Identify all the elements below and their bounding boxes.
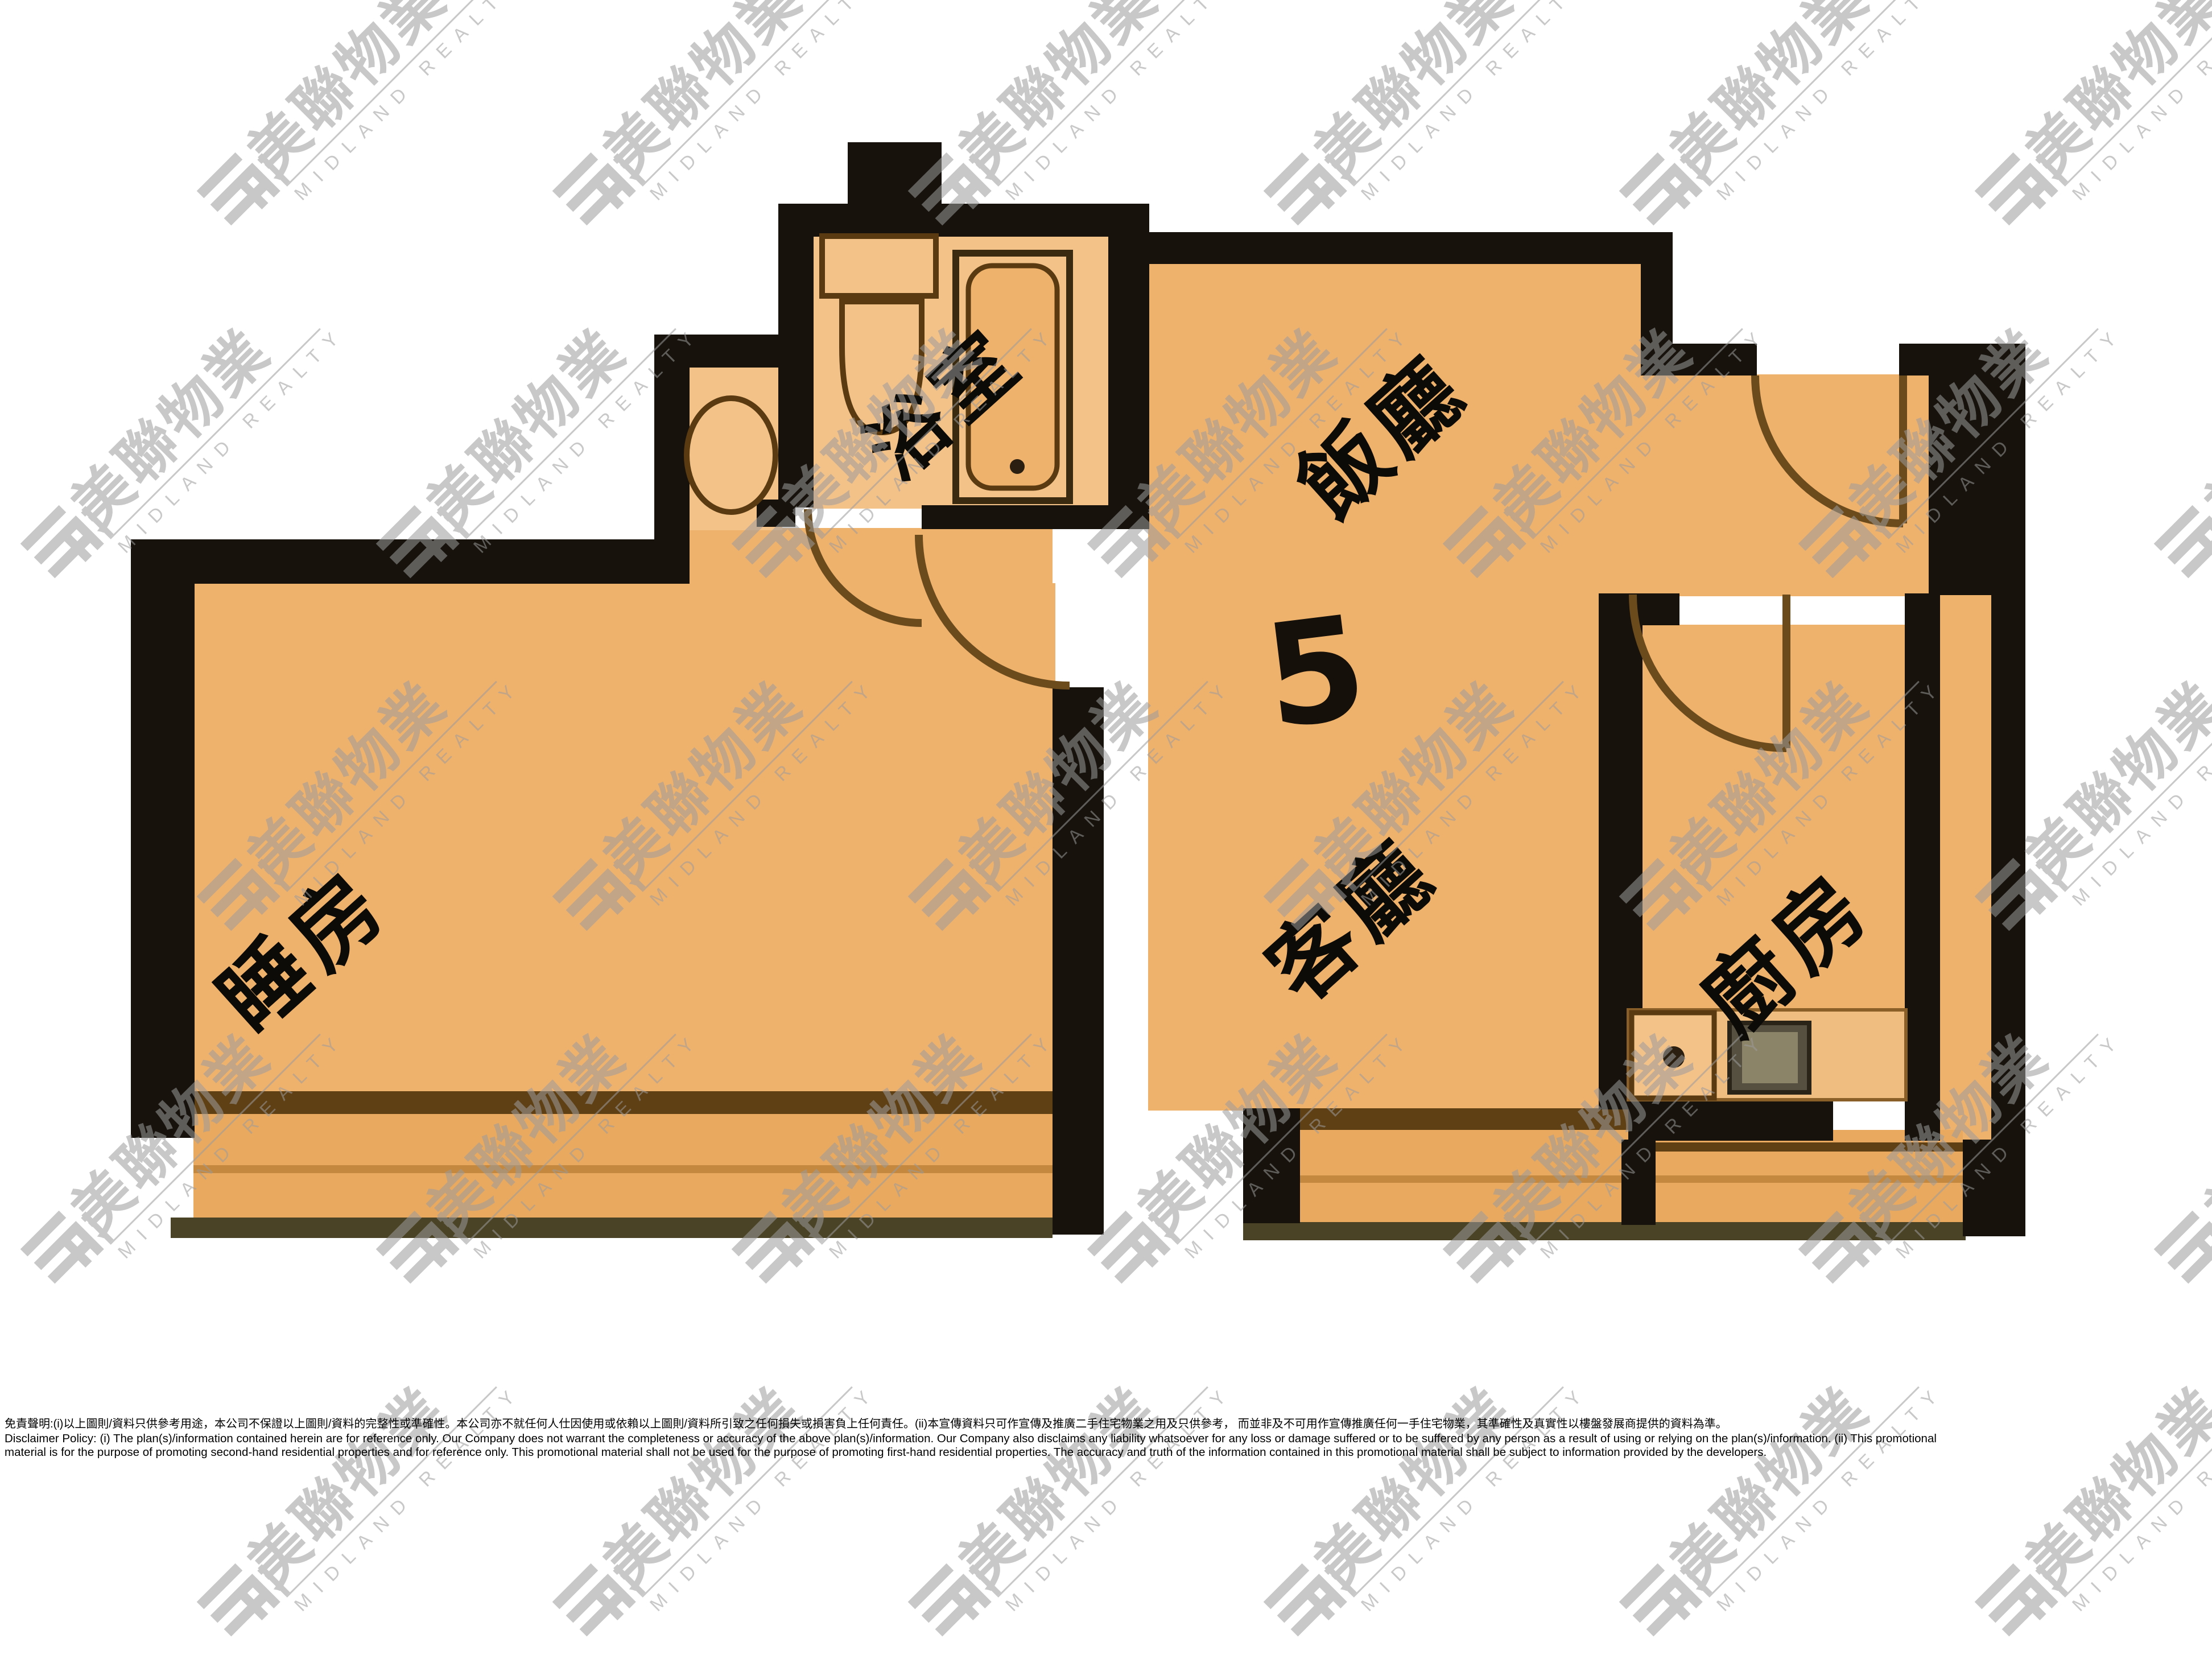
bathroom-bottom-wall — [922, 505, 1149, 529]
midland-logo-icon — [1264, 1563, 1341, 1641]
kitchen-bottom-wall — [1628, 1098, 1833, 1141]
bedroom-top-wall — [131, 539, 657, 584]
kitchen-window-line — [1656, 1142, 1963, 1152]
bedroom-living-partition — [1053, 687, 1104, 1235]
midland-logo-icon — [1975, 1563, 2052, 1641]
entrance-top-wall-right — [1899, 344, 1930, 375]
dining-step-wall — [1641, 232, 1673, 375]
unit-number: 5 — [1256, 584, 1375, 761]
kitchen-bay-left-frame — [1621, 1140, 1656, 1225]
midland-logo-icon — [197, 1563, 274, 1641]
disclaimer-english: Disclaimer Policy: (i) The plan(s)/infor… — [5, 1432, 1956, 1459]
bathtub-drain — [1010, 459, 1025, 474]
dining-top-wall — [1148, 232, 1673, 264]
bathroom-left-wall — [778, 204, 814, 507]
hall-floor — [654, 528, 1053, 585]
kitchen-sink-drain — [1663, 1046, 1685, 1068]
bay-right-frame — [1963, 1140, 2025, 1236]
bedroom-sill-edge — [171, 1218, 1053, 1238]
midland-logo-icon — [1619, 1563, 1697, 1641]
entrance-foyer-floor — [1639, 374, 1932, 596]
midland-logo-icon — [552, 1563, 630, 1641]
vestibule-stub-wall — [757, 500, 795, 527]
bathroom-top-bump — [848, 142, 942, 236]
bedroom-left-wall — [131, 539, 195, 1138]
living-window-line — [1300, 1108, 1630, 1130]
bedroom-sill-line — [193, 1165, 1053, 1173]
entrance-top-wall-left — [1673, 344, 1757, 375]
bathroom-right-wall — [1108, 204, 1149, 529]
disclaimer: 免責聲明:(i)以上圖則/資料只供參考用途，本公司不保證以上圖則/資料的完整性或… — [5, 1414, 2166, 1459]
kitchen-right-wall — [1905, 593, 1940, 1141]
wash-basin — [687, 398, 775, 512]
floor-plan — [0, 0, 2212, 1464]
right-sill-edge — [1243, 1222, 1966, 1240]
outer-right-wall-lower — [1991, 593, 2025, 1141]
bathroom-top-wall — [778, 204, 1149, 237]
floor-plan-canvas: 睡房 客廳 飯廳 廚房 浴室 5 美聯物業MIDLAND REALTY美聯物業M… — [0, 0, 2212, 1464]
midland-logo-icon — [908, 1563, 985, 1641]
duct-strip — [1937, 595, 1994, 1141]
disclaimer-chinese: 免責聲明:(i)以上圖則/資料只供參考用途，本公司不保證以上圖則/資料的完整性或… — [5, 1414, 2166, 1431]
outer-right-wall-upper — [1929, 344, 2025, 595]
bay-left-frame — [1243, 1108, 1300, 1223]
bedroom-floor — [176, 583, 1055, 1109]
bedroom-window-line — [193, 1091, 1053, 1114]
toilet-cistern — [822, 236, 936, 296]
